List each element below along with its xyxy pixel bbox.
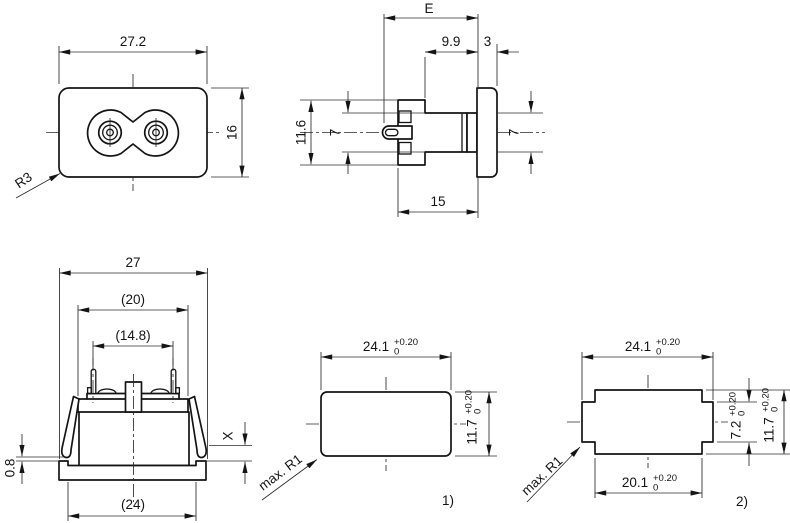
- front-view: 27.2 16 R3: [12, 34, 249, 198]
- side-view: E 9.9 3 11.6 7 7 15: [294, 1, 546, 218]
- dim-rear-w20: (20): [121, 292, 145, 307]
- dim-front-radius: R3: [12, 169, 35, 191]
- terminal-pin-right: [171, 369, 176, 393]
- dimension-drawing: 27.2 16 R3 E 9.9 3 11.6: [0, 0, 790, 523]
- rear-body: [79, 412, 189, 466]
- dim-cut1-h: 11.7: [465, 419, 480, 444]
- dim-rear-x: X: [221, 431, 236, 440]
- dim-side-depth: 9.9: [442, 34, 461, 49]
- dim-cut2-wi-tolz: 0: [653, 483, 658, 494]
- snap-latch-left: [62, 397, 79, 458]
- dim-rear-w24: (24): [121, 497, 145, 512]
- side-neck: [467, 113, 477, 152]
- rear-view: 27 (20) (14.8) 0.8 X (24): [3, 255, 253, 521]
- cutout2-outline: [582, 390, 713, 454]
- dim-cut2-w-tolz: 0: [656, 347, 661, 358]
- dim-cut2-hm-tolz: 0: [737, 411, 748, 416]
- cutout2-view: 24.1 +0.20 0 20.1 +0.20 0 7.2 +0.20 0 11…: [518, 337, 790, 509]
- dim-side-height: 11.6: [294, 120, 309, 145]
- dim-side-right7: 7: [507, 129, 522, 137]
- dim-cut1-radius: max. R1: [256, 451, 305, 493]
- dim-cut2-h-tolz: 0: [770, 407, 781, 412]
- dim-rear-g08: 0.8: [3, 459, 18, 478]
- snap-latch-right: [189, 397, 206, 458]
- dim-side-left7: 7: [328, 129, 343, 137]
- dim-cut2-radius: max. R1: [518, 453, 565, 498]
- cutout1-label: 1): [442, 493, 454, 508]
- dim-cut1-h-tolz: 0: [473, 409, 484, 414]
- dim-cut2-hm: 7.2: [729, 421, 744, 440]
- dim-cut1-w-tolz: 0: [394, 347, 399, 358]
- terminal-pin-left: [91, 369, 96, 393]
- dim-front-height: 16: [225, 125, 240, 140]
- dim-side-flange: 3: [484, 34, 492, 49]
- technical-drawing-canvas: 27.2 16 R3 E 9.9 3 11.6: [0, 0, 790, 523]
- dim-side-e: E: [424, 1, 433, 16]
- dim-front-width: 27.2: [120, 34, 146, 49]
- dim-cut2-h: 11.7: [762, 417, 777, 442]
- dim-cut2-w: 24.1: [625, 339, 651, 354]
- dim-rear-w148: (14.8): [115, 328, 150, 343]
- dim-cut1-w: 24.1: [363, 339, 389, 354]
- side-flange: [477, 88, 497, 177]
- cutout2-label: 2): [736, 494, 748, 509]
- cutout1-view: 24.1 +0.20 0 11.7 +0.20 0 max. R1 1): [256, 337, 497, 508]
- dim-side-depth15: 15: [430, 194, 445, 209]
- dim-cut2-wi: 20.1: [622, 475, 648, 490]
- cutout1-outline: [321, 392, 451, 456]
- dim-rear-w27: 27: [125, 255, 140, 270]
